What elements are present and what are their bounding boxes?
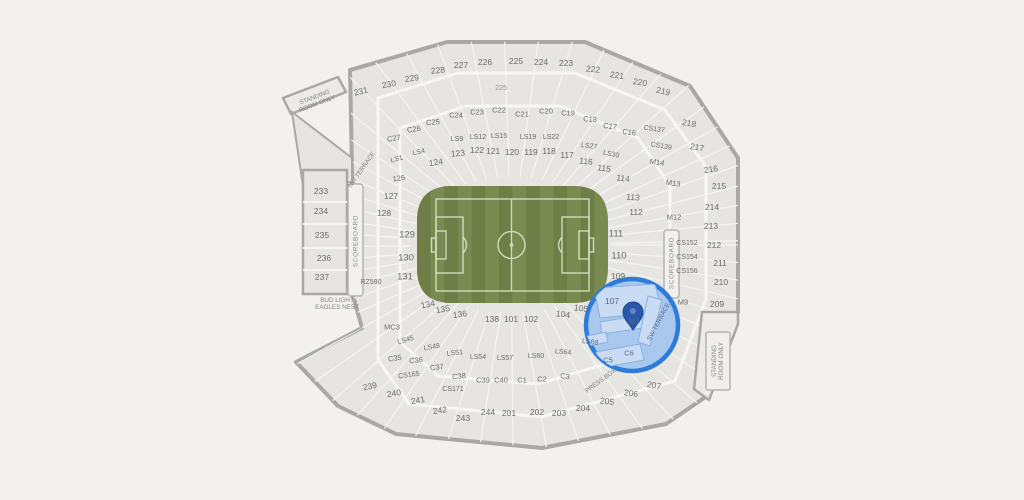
section-107[interactable]: 107 xyxy=(605,297,619,307)
section-206[interactable]: 206 xyxy=(623,388,638,400)
bud-light-eagles-nest[interactable]: BUD LIGHT EAGLES NEST xyxy=(315,297,359,311)
section-203[interactable]: 203 xyxy=(552,409,566,419)
section-102[interactable]: 102 xyxy=(524,315,538,325)
section-119[interactable]: 119 xyxy=(524,148,538,158)
section-c6[interactable]: C6 xyxy=(624,350,634,359)
section-230[interactable]: 230 xyxy=(381,79,397,91)
section-c5[interactable]: C5 xyxy=(603,357,613,366)
section-110[interactable]: 110 xyxy=(611,252,626,263)
section-m13[interactable]: M13 xyxy=(665,179,681,190)
section-cs154[interactable]: CS154 xyxy=(676,254,697,262)
section-105[interactable]: 105 xyxy=(573,303,588,315)
section-240[interactable]: 240 xyxy=(386,388,402,400)
section-ls4[interactable]: LS4 xyxy=(412,148,426,158)
section-c23[interactable]: C23 xyxy=(470,109,484,118)
section-211[interactable]: 211 xyxy=(713,259,727,269)
section-c35[interactable]: C35 xyxy=(388,354,403,364)
section-202[interactable]: 202 xyxy=(530,408,544,418)
section-ls9[interactable]: LS9 xyxy=(451,136,463,144)
section-m14[interactable]: M14 xyxy=(649,158,665,169)
section-mc3[interactable]: MC3 xyxy=(384,324,400,333)
section-m9[interactable]: M9 xyxy=(678,299,688,308)
section-201[interactable]: 201 xyxy=(502,409,516,419)
section-116[interactable]: 116 xyxy=(579,156,594,167)
section-237[interactable]: 237 xyxy=(315,273,329,283)
section-ls68[interactable]: LS68 xyxy=(581,338,598,348)
section-c36[interactable]: C36 xyxy=(409,356,424,366)
section-c37[interactable]: C37 xyxy=(430,363,445,373)
section-216[interactable]: 216 xyxy=(703,164,718,176)
stadium-seating-map: 2312302292282272262252242232222212202192… xyxy=(0,0,1024,500)
section-m12[interactable]: M12 xyxy=(667,214,682,223)
section-236[interactable]: 236 xyxy=(317,254,331,264)
section-241[interactable]: 241 xyxy=(410,395,426,407)
section-126[interactable]: 126 xyxy=(392,174,406,184)
sw-terrace[interactable]: SW TERRACE xyxy=(646,302,672,342)
section-c16[interactable]: C16 xyxy=(622,128,637,138)
section-212[interactable]: 212 xyxy=(707,241,721,251)
section-112[interactable]: 112 xyxy=(629,208,643,218)
section-130[interactable]: 130 xyxy=(398,254,414,265)
section-221[interactable]: 221 xyxy=(609,70,624,82)
section-226[interactable]: 226 xyxy=(478,58,492,68)
nw-terrace[interactable]: NW TERRACE xyxy=(347,151,377,190)
section-225[interactable]: 225 xyxy=(509,57,523,67)
section-227[interactable]: 227 xyxy=(454,61,468,71)
section-c40[interactable]: C40 xyxy=(494,377,508,386)
section-224[interactable]: 224 xyxy=(534,58,548,68)
section-209[interactable]: 209 xyxy=(710,300,724,310)
section-239[interactable]: 239 xyxy=(362,381,378,394)
section-138[interactable]: 138 xyxy=(485,315,499,325)
section-231[interactable]: 231 xyxy=(353,86,369,99)
section-m1[interactable]: M1 xyxy=(629,318,639,327)
section-127[interactable]: 127 xyxy=(384,192,398,202)
section-cs171[interactable]: CS171 xyxy=(442,386,463,394)
press-box[interactable]: PRESS BOX xyxy=(584,367,618,394)
section-ls12[interactable]: LS12 xyxy=(470,134,486,142)
section-ls1[interactable]: LS1 xyxy=(390,155,404,166)
section-213[interactable]: 213 xyxy=(704,222,718,232)
section-214[interactable]: 214 xyxy=(705,203,719,213)
section-135[interactable]: 135 xyxy=(435,304,451,316)
section-c25[interactable]: C25 xyxy=(426,118,440,128)
standing-room-se[interactable]: STANDING ROOM ONLY xyxy=(711,342,725,380)
section-136[interactable]: 136 xyxy=(452,309,467,321)
section-109[interactable]: 109 xyxy=(611,272,625,282)
section-117[interactable]: 117 xyxy=(560,151,574,161)
section-207[interactable]: 207 xyxy=(646,380,662,392)
section-235[interactable]: 235 xyxy=(315,231,329,241)
scoreboard-east: SCOREBOARD xyxy=(668,237,675,289)
section-ls15[interactable]: LS15 xyxy=(491,133,507,141)
section-c2[interactable]: C2 xyxy=(537,376,547,385)
section-ls30[interactable]: LS30 xyxy=(602,149,620,160)
section-229[interactable]: 229 xyxy=(404,73,419,85)
section-104[interactable]: 104 xyxy=(555,309,570,321)
section-cs152[interactable]: CS152 xyxy=(676,240,697,248)
section-122[interactable]: 122 xyxy=(470,146,484,156)
section-113[interactable]: 113 xyxy=(626,193,640,204)
section-c22[interactable]: C22 xyxy=(492,107,506,116)
section-205[interactable]: 205 xyxy=(599,396,614,407)
section-ls48[interactable]: LS48 xyxy=(423,343,441,354)
section-228[interactable]: 228 xyxy=(431,66,446,77)
section-220[interactable]: 220 xyxy=(632,77,648,89)
section-cs139[interactable]: CS139 xyxy=(650,141,672,153)
section-ls51[interactable]: LS51 xyxy=(446,349,463,359)
section-215[interactable]: 215 xyxy=(712,182,726,192)
section-c3[interactable]: C3 xyxy=(560,372,571,382)
section-114[interactable]: 114 xyxy=(616,173,631,185)
standing-room-nw[interactable]: STANDING ROOM ONLY xyxy=(296,87,337,114)
section-cs156[interactable]: CS156 xyxy=(676,268,697,276)
section-210[interactable]: 210 xyxy=(714,278,728,288)
section-ls45[interactable]: LS45 xyxy=(397,335,415,347)
section-120[interactable]: 120 xyxy=(505,148,519,158)
section-118[interactable]: 118 xyxy=(542,147,556,157)
section-c27[interactable]: C27 xyxy=(386,134,401,145)
section-123[interactable]: 123 xyxy=(451,149,466,160)
section-131[interactable]: 131 xyxy=(397,273,413,284)
section-ls19[interactable]: LS19 xyxy=(520,134,536,142)
section-c39[interactable]: C39 xyxy=(476,377,490,386)
section-129[interactable]: 129 xyxy=(399,231,415,242)
section-c18[interactable]: C18 xyxy=(583,115,597,125)
scoreboard-west: SCOREBOARD xyxy=(352,215,359,267)
section-223[interactable]: 223 xyxy=(559,59,573,69)
section-c20[interactable]: C20 xyxy=(539,108,553,117)
section-cs165[interactable]: CS165 xyxy=(398,371,420,382)
section-115[interactable]: 115 xyxy=(597,163,612,175)
section-c1[interactable]: C1 xyxy=(517,377,527,386)
section-ls54[interactable]: LS54 xyxy=(470,354,486,362)
section-234[interactable]: 234 xyxy=(314,207,328,217)
section-rz590[interactable]: RZ590 xyxy=(360,279,381,287)
section-218[interactable]: 218 xyxy=(681,118,697,130)
section-233[interactable]: 233 xyxy=(314,187,328,197)
section-ls27[interactable]: LS27 xyxy=(580,142,597,152)
section-c17[interactable]: C17 xyxy=(603,122,618,132)
section-c38[interactable]: C38 xyxy=(452,372,467,382)
section-ls60[interactable]: LS60 xyxy=(528,353,544,361)
section-cs137[interactable]: CS137 xyxy=(643,125,665,136)
section-111[interactable]: 111 xyxy=(609,230,623,241)
section-242[interactable]: 242 xyxy=(432,405,447,417)
section-124[interactable]: 124 xyxy=(428,157,443,169)
section-222[interactable]: 222 xyxy=(586,65,601,76)
section-labels-layer: 2312302292282272262252242232222212202192… xyxy=(0,0,1024,500)
section-243[interactable]: 243 xyxy=(456,414,470,424)
section-217[interactable]: 217 xyxy=(689,142,705,154)
section-ls57[interactable]: LS57 xyxy=(497,355,513,363)
section-ls22[interactable]: LS22 xyxy=(543,134,559,142)
tunnel-225: 225 xyxy=(495,85,507,93)
section-128[interactable]: 128 xyxy=(377,209,391,219)
section-c19[interactable]: C19 xyxy=(561,110,575,119)
section-121[interactable]: 121 xyxy=(486,147,500,157)
section-ls64[interactable]: LS64 xyxy=(554,348,571,358)
section-101[interactable]: 101 xyxy=(504,315,518,325)
section-c26[interactable]: C26 xyxy=(407,125,422,135)
section-134[interactable]: 134 xyxy=(420,299,436,312)
section-244[interactable]: 244 xyxy=(481,408,495,418)
section-204[interactable]: 204 xyxy=(576,404,590,414)
section-c24[interactable]: C24 xyxy=(449,112,463,121)
section-219[interactable]: 219 xyxy=(655,86,671,99)
section-c21[interactable]: C21 xyxy=(515,111,529,120)
